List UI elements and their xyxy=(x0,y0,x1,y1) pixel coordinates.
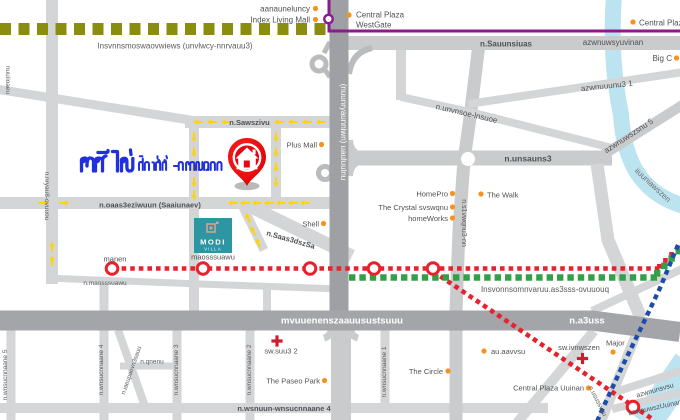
svg-text:The Paseo Park: The Paseo Park xyxy=(266,377,320,386)
svg-text:mvuuenenszaauusustsuuu: mvuuenenszaauusustsuuu xyxy=(281,316,403,327)
svg-text:manen: manen xyxy=(104,255,127,264)
svg-text:n.qnenu: n.qnenu xyxy=(140,359,164,366)
svg-text:Major: Major xyxy=(606,339,625,348)
svg-text:WestGate: WestGate xyxy=(356,21,392,30)
svg-text:Insvonnsomnvaruu.as3sss-ovuuou: Insvonnsomnvaruu.as3sss-ovuuouq xyxy=(481,285,609,294)
svg-text:azwnuwsyuvinan: azwnuwsyuvinan xyxy=(583,38,643,47)
svg-text:HomePro: HomePro xyxy=(416,190,448,199)
svg-text:Insvnnsmoswaovwiews (unvlwcy-n: Insvnnsmoswaovwiews (unvlwcy-nnrvauu3) xyxy=(97,42,253,51)
svg-text:n.wnsucnnaane 5: n.wnsucnnaane 5 xyxy=(2,349,9,400)
svg-text:sw.ivnwszen: sw.ivnwszen xyxy=(558,343,600,352)
svg-text:n.oaas3eziwuun (Saaiunaev): n.oaas3eziwuun (Saaiunaev) xyxy=(99,201,201,210)
svg-text:n.s1vwqnu3-nn: n.s1vwqnu3-nn xyxy=(460,199,467,247)
svg-text:aanauneluncy: aanauneluncy xyxy=(260,5,310,14)
svg-text:Big C: Big C xyxy=(652,54,672,63)
svg-text:n.wnsucnnaane 3: n.wnsucnnaane 3 xyxy=(173,344,180,395)
svg-text:n.wnsucnnaane 4: n.wnsucnnaane 4 xyxy=(98,344,105,395)
svg-text:au.aavvsu: au.aavvsu xyxy=(491,347,525,356)
svg-text:sw.suu3 2: sw.suu3 2 xyxy=(264,347,297,356)
svg-text:n.Sauunsiuas: n.Sauunsiuas xyxy=(480,40,533,49)
svg-text:n.Sawszivu: n.Sawszivu xyxy=(229,118,270,127)
svg-text:n.wsnuun-wnsucnnaane 4: n.wsnuun-wnsucnnaane 4 xyxy=(237,404,331,413)
svg-text:The Circle: The Circle xyxy=(409,367,443,376)
svg-text:The Walk: The Walk xyxy=(487,191,519,200)
svg-text:Plus Mall: Plus Mall xyxy=(287,141,318,150)
svg-text:Central Plaza Uuinan: Central Plaza Uuinan xyxy=(513,384,584,393)
svg-text:n.wnsucnnaane 1: n.wnsucnnaane 1 xyxy=(381,346,388,397)
svg-text:n.unsauns3: n.unsauns3 xyxy=(504,154,552,164)
svg-text:(nuunryaunniwn) uauluulnu: (nuunryaunniwn) uauluulnu xyxy=(339,84,348,181)
svg-text:maosssuawu: maosssuawu xyxy=(191,253,235,262)
svg-text:n.a3uss: n.a3uss xyxy=(569,316,604,327)
svg-text:homeWorks: homeWorks xyxy=(408,214,448,223)
svg-text:Shell: Shell xyxy=(302,220,319,229)
svg-text:VILLA: VILLA xyxy=(204,247,221,252)
svg-text:MODI: MODI xyxy=(200,238,226,247)
svg-text:n.maosssuawu: n.maosssuawu xyxy=(83,280,127,287)
svg-text:n.wnsucnnaane 2: n.wnsucnnaane 2 xyxy=(246,344,253,395)
svg-text:Central Plaza: Central Plaza xyxy=(356,11,405,20)
svg-text:n.nryau8-ovuuou: n.nryau8-ovuuou xyxy=(43,172,50,221)
svg-text:Central Plaz: Central Plaz xyxy=(639,19,680,28)
svg-text:The Crystal svswqnu: The Crystal svswqnu xyxy=(378,203,448,212)
svg-text:nuuiioaeu: nuuiioaeu xyxy=(4,66,11,95)
svg-text:Index Living Mall: Index Living Mall xyxy=(250,16,310,25)
